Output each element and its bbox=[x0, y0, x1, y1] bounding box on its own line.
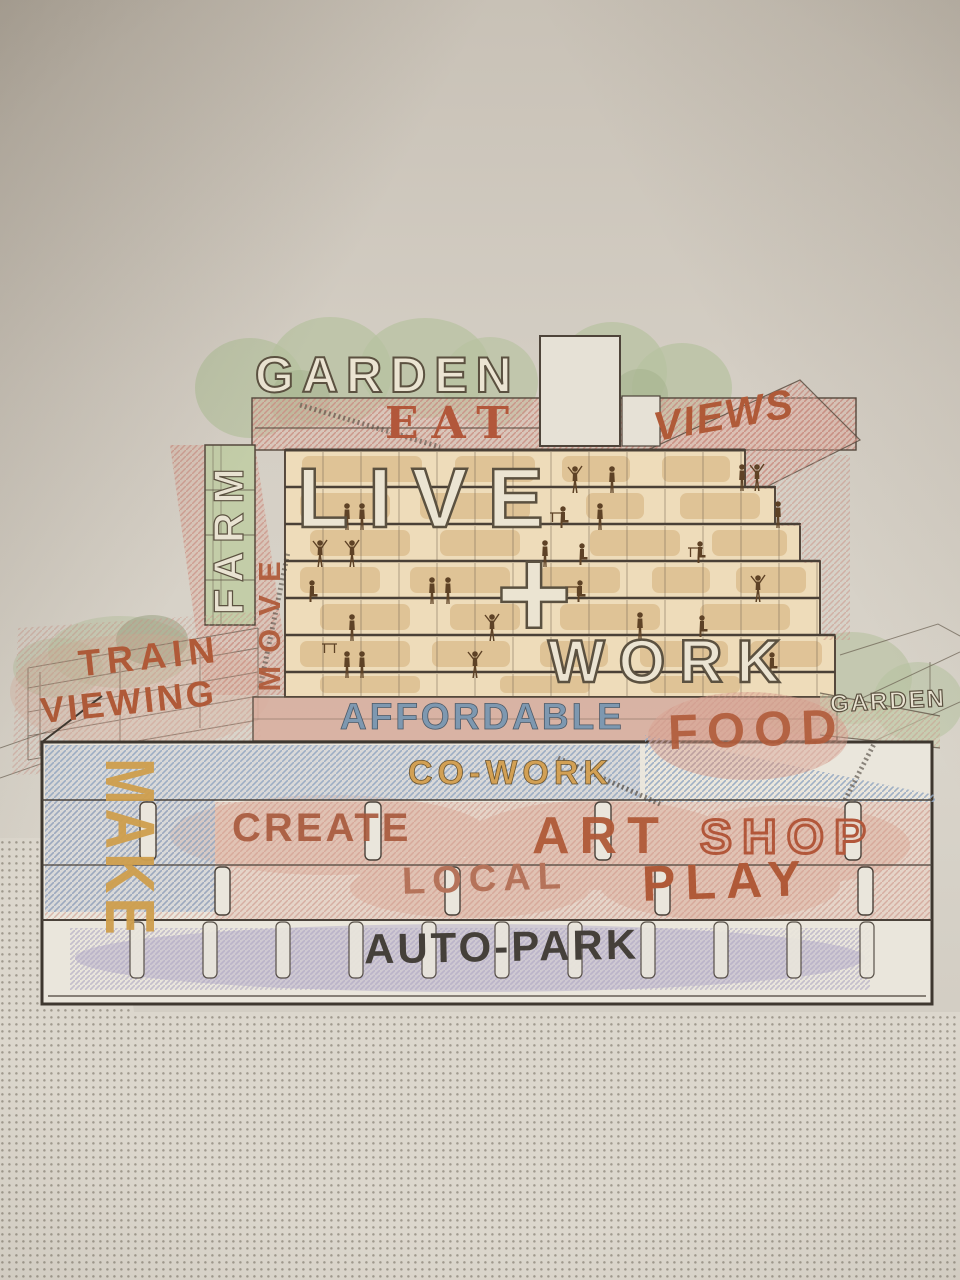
label-make: MAKE bbox=[90, 758, 165, 918]
label-cowork: CO-WORK bbox=[408, 756, 613, 790]
label-autopark: AUTO-PARK bbox=[364, 924, 640, 971]
label-farm: FARM bbox=[208, 455, 250, 619]
roof-box bbox=[540, 336, 620, 446]
label-play: PLAY bbox=[641, 853, 811, 909]
photo-of-section-diagram: GARDEN EAT VIEWS FARM MOVE LIVE + WORK T… bbox=[0, 0, 960, 1280]
label-move: MOVE bbox=[254, 545, 290, 695]
label-garden-terrace: GARDEN bbox=[829, 687, 946, 717]
label-food: FOOD bbox=[667, 703, 846, 758]
label-local: LOCAL bbox=[401, 857, 568, 901]
label-work: WORK bbox=[548, 632, 794, 692]
label-garden-roof: GARDEN bbox=[255, 350, 520, 400]
label-art: ART bbox=[532, 810, 669, 862]
label-affordable: AFFORDABLE bbox=[340, 698, 625, 735]
label-create: CREATE bbox=[232, 808, 411, 848]
label-eat: EAT bbox=[385, 402, 522, 446]
